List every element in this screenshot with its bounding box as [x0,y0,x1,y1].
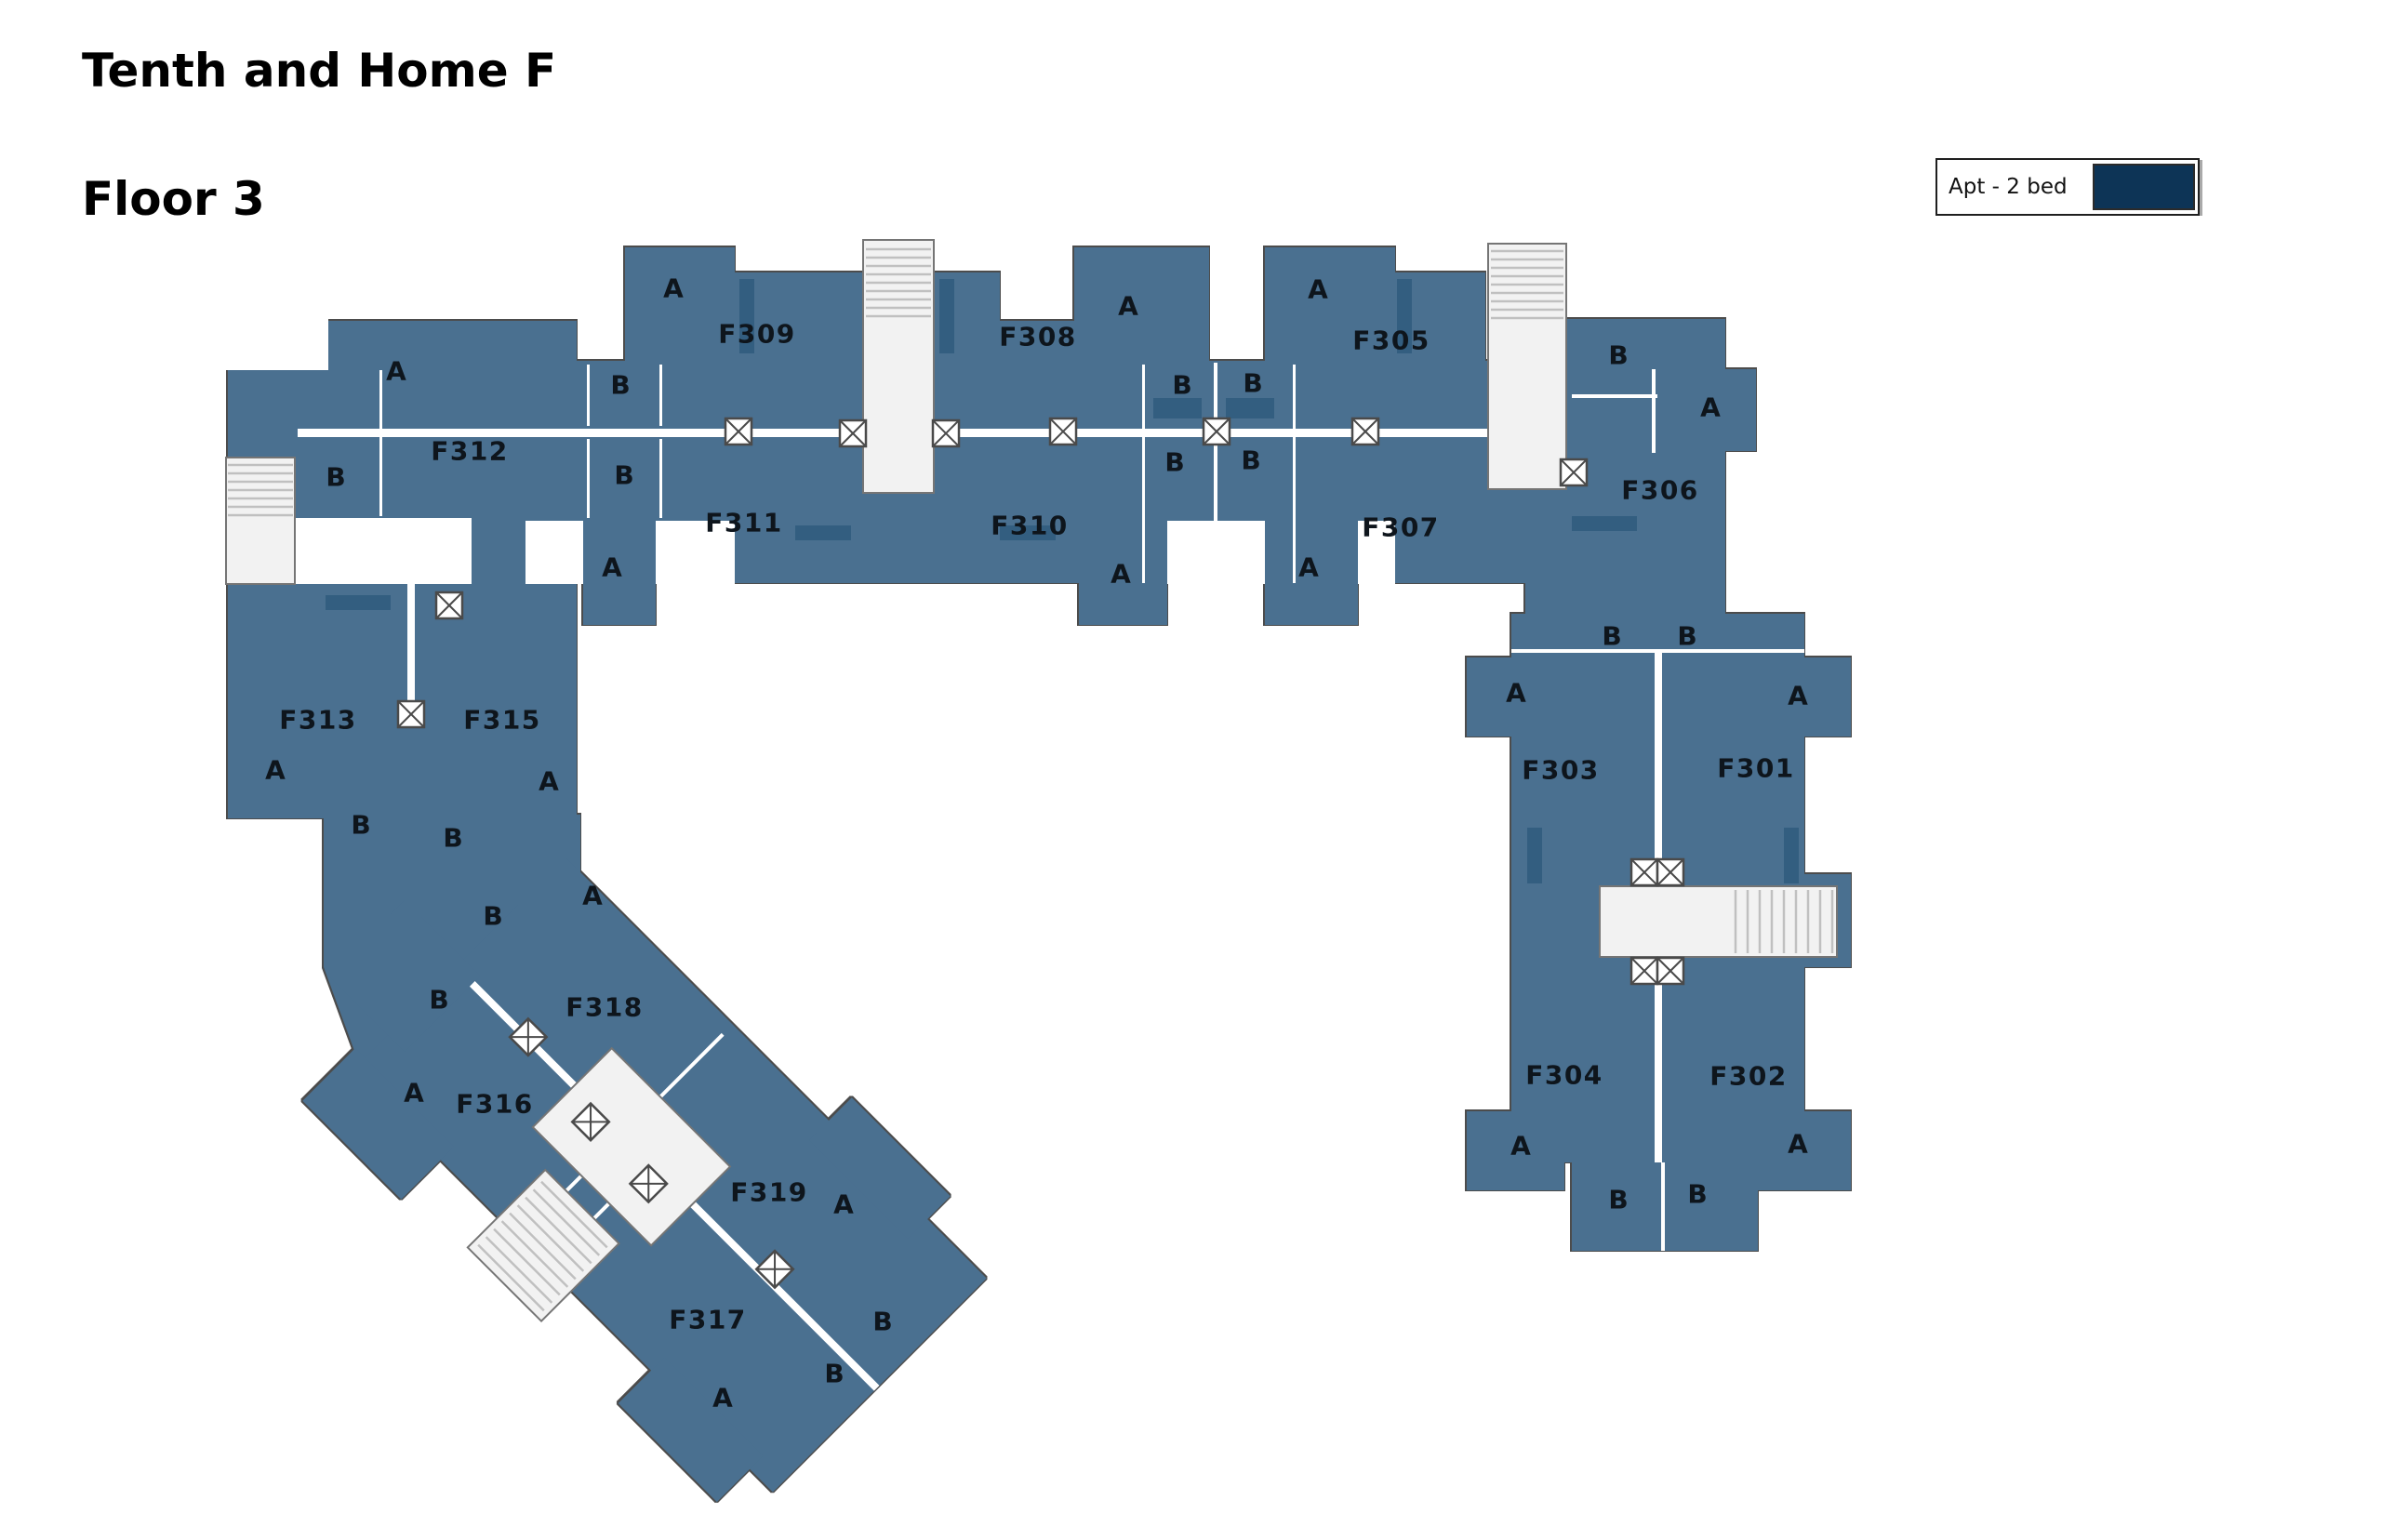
elevator-icon [1631,859,1657,885]
elevator-icon [1657,958,1683,984]
elevator-icon [1631,958,1657,984]
floorplan-page: Tenth and Home F Floor 3 Apt - 2 bed [0,0,2381,1540]
floorplan-svg [0,0,2381,1540]
elevator-icon [1657,859,1683,885]
elevator-icon [1050,418,1076,445]
elevator-icon [398,701,424,727]
elevator-icon [1204,418,1230,445]
stairwell-east [1600,886,1837,957]
stairwell-west [226,458,295,584]
elevator-icon [436,592,462,618]
elevator-icon [840,420,866,446]
stairwell-north-2 [1488,244,1566,489]
elevator-icon [1561,459,1587,485]
stairwell-north-1 [863,240,934,493]
elevator-icon [1352,418,1378,445]
elevator-icon [933,420,959,446]
elevator-icon [725,418,752,445]
